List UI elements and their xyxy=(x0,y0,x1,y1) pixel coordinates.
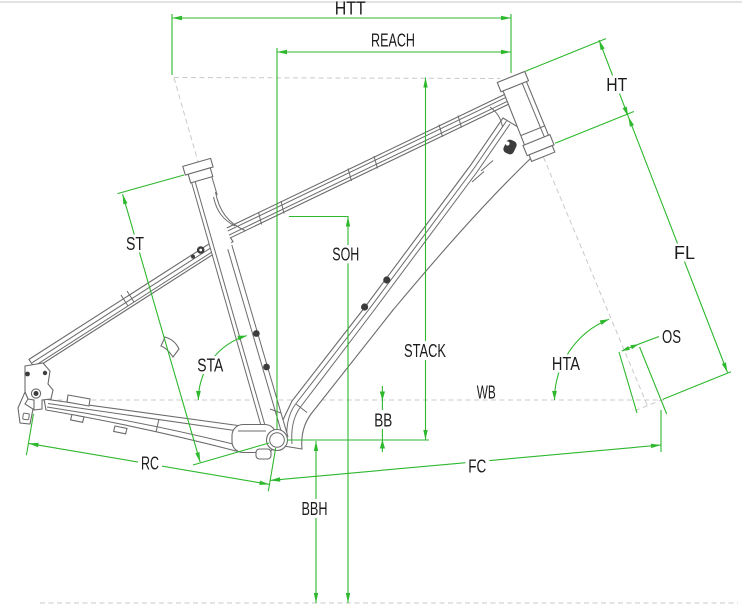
svg-text:BB: BB xyxy=(374,410,392,430)
svg-text:RC: RC xyxy=(141,453,159,473)
svg-text:FL: FL xyxy=(674,243,695,263)
svg-text:FC: FC xyxy=(468,456,486,476)
svg-text:OS: OS xyxy=(662,327,681,347)
svg-text:REACH: REACH xyxy=(371,30,415,50)
svg-text:HTA: HTA xyxy=(552,354,580,374)
svg-text:HTT: HTT xyxy=(335,0,366,19)
svg-text:ST: ST xyxy=(126,234,144,254)
svg-text:STA: STA xyxy=(197,355,223,375)
svg-text:HT: HT xyxy=(606,75,627,95)
svg-text:STACK: STACK xyxy=(404,341,446,361)
svg-text:BBH: BBH xyxy=(302,499,328,519)
svg-text:SOH: SOH xyxy=(332,245,359,265)
svg-text:WB: WB xyxy=(477,383,496,403)
